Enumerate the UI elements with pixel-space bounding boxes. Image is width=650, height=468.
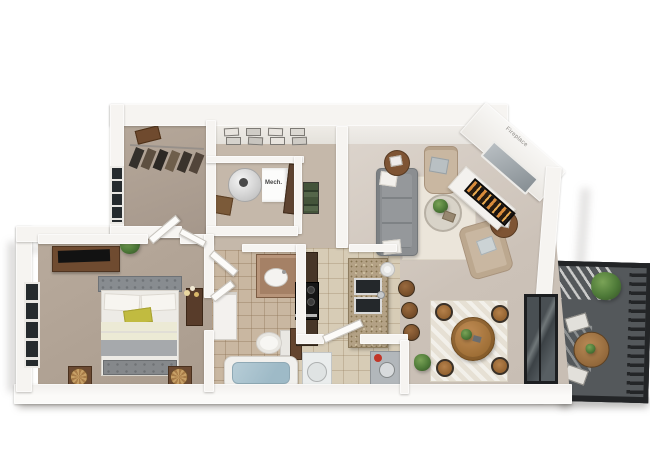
foot-bench bbox=[103, 360, 177, 375]
stove-burner bbox=[307, 286, 315, 294]
closet-right-wall bbox=[206, 120, 216, 234]
laundry-right-wall bbox=[400, 340, 409, 394]
console-flowers bbox=[190, 286, 195, 291]
dining-chair bbox=[491, 305, 509, 323]
bath-kitchen-wall bbox=[296, 244, 306, 344]
bar-stool bbox=[398, 280, 415, 297]
tank-port bbox=[379, 362, 395, 378]
gallery-frame bbox=[226, 137, 241, 145]
bedroom-window bbox=[24, 282, 40, 368]
stove-burner bbox=[307, 298, 315, 306]
armchair-pillow bbox=[429, 157, 449, 175]
dining-chair bbox=[435, 303, 453, 321]
gallery-frame bbox=[270, 137, 285, 145]
mech-top-wall bbox=[206, 156, 304, 163]
closet-window bbox=[110, 166, 124, 224]
bed bbox=[98, 276, 180, 374]
bedroom-right-wall bbox=[204, 330, 214, 392]
faucet bbox=[282, 270, 286, 274]
dining-chair bbox=[436, 359, 454, 377]
bathroom-top-wall bbox=[242, 244, 304, 252]
console-flowers bbox=[194, 292, 199, 297]
top-exterior-wall bbox=[110, 104, 508, 126]
paper-towel-roll bbox=[380, 262, 395, 277]
bottom-exterior-wall bbox=[14, 384, 572, 404]
kitchen-top-wall bbox=[349, 244, 397, 252]
bathtub-water bbox=[232, 362, 290, 384]
console-flowers bbox=[184, 290, 190, 296]
sink-faucet bbox=[377, 291, 385, 299]
gallery-frame bbox=[292, 137, 307, 146]
gallery-frame bbox=[290, 128, 305, 136]
side-table-decor bbox=[389, 155, 403, 167]
tank-red-cap bbox=[374, 354, 382, 362]
gallery-frame bbox=[224, 128, 239, 137]
bedroom-right-wall bbox=[204, 234, 214, 298]
gray-throw bbox=[101, 340, 177, 356]
bedroom-top-wall bbox=[38, 234, 148, 244]
gallery-frame bbox=[248, 137, 263, 146]
mech-bottom-wall bbox=[206, 226, 298, 236]
laundry-top-wall bbox=[296, 334, 324, 344]
dining-chair bbox=[491, 357, 509, 375]
dining-floor-plant bbox=[414, 354, 431, 371]
toilet-bowl bbox=[256, 332, 282, 354]
tv bbox=[58, 249, 110, 263]
hall-living-wall bbox=[336, 126, 348, 248]
sink-basin bbox=[354, 297, 382, 314]
sliding-glass-door bbox=[524, 294, 558, 384]
mech-label: Mech. bbox=[265, 180, 282, 186]
bar-stool bbox=[401, 302, 418, 319]
washer-door bbox=[307, 362, 327, 382]
floorplan-scene: Mech. bbox=[0, 0, 650, 468]
sliding-door-mullion bbox=[539, 297, 541, 381]
mech-divider-wall bbox=[294, 156, 302, 234]
water-heater-cap bbox=[239, 178, 248, 187]
gallery-frame bbox=[246, 128, 261, 136]
table-centerpiece-plant bbox=[461, 329, 472, 340]
shelf-linens bbox=[303, 182, 319, 214]
gallery-frame bbox=[268, 128, 283, 137]
balcony-railing-right bbox=[626, 263, 650, 404]
